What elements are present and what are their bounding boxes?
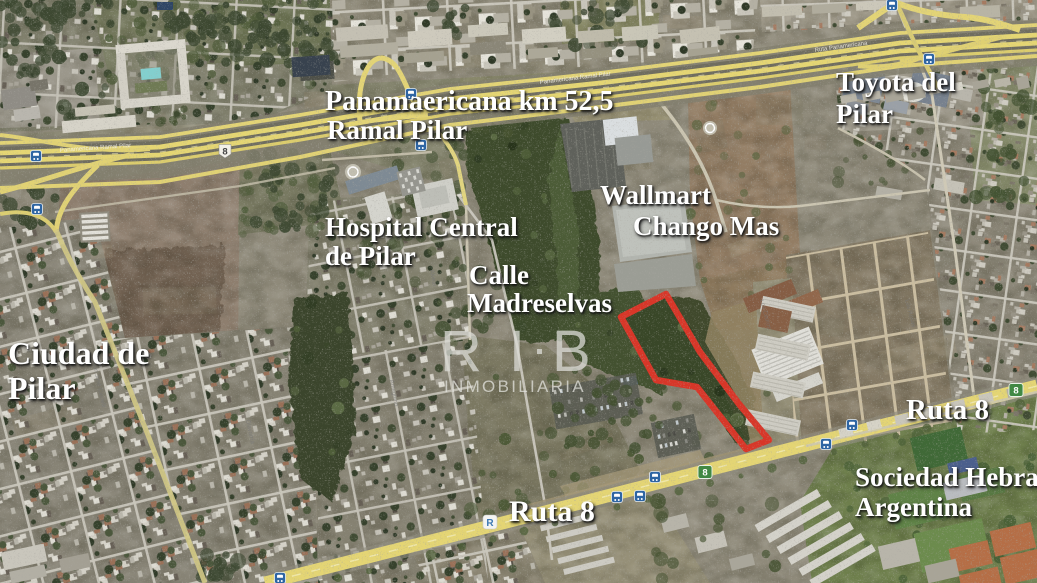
svg-text:Sociedad Hebrai: Sociedad Hebrai [855,462,1037,492]
svg-text:Ramal Pilar: Ramal Pilar [327,115,467,145]
svg-text:Argentina: Argentina [855,492,972,522]
svg-text:RIB: RIB [440,319,618,384]
svg-text:Pilar: Pilar [8,370,76,406]
svg-text:Panamaericana km 52,5: Panamaericana km 52,5 [325,86,614,117]
svg-text:Ciudad de: Ciudad de [8,335,149,371]
svg-text:Pilar: Pilar [836,99,893,129]
svg-text:Ruta 8: Ruta 8 [906,394,989,426]
svg-text:Ruta 8: Ruta 8 [509,495,595,528]
svg-text:de Pilar: de Pilar [325,241,416,271]
svg-text:8: 8 [702,468,707,479]
svg-text:R: R [486,518,494,529]
svg-text:8: 8 [1013,386,1018,397]
svg-text:Wallmart: Wallmart [600,180,711,210]
svg-text:Chango Mas: Chango Mas [633,211,779,241]
svg-text:Hospital Central: Hospital Central [325,212,518,242]
svg-text:8: 8 [222,146,227,157]
svg-text:INMOBILIARIA: INMOBILIARIA [444,377,586,396]
svg-text:Toyota del: Toyota del [836,67,956,97]
svg-text:Madreselvas: Madreselvas [467,288,612,318]
svg-text:Calle: Calle [469,260,529,290]
